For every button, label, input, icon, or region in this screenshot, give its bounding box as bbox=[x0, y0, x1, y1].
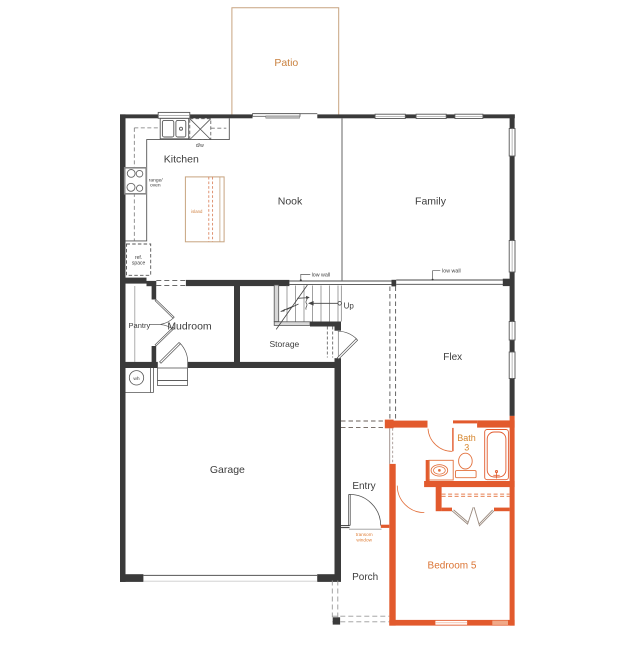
svg-text:Storage: Storage bbox=[270, 339, 300, 349]
svg-text:Patio: Patio bbox=[274, 57, 298, 69]
svg-text:Entry: Entry bbox=[352, 481, 375, 492]
svg-text:Nook: Nook bbox=[278, 196, 303, 208]
svg-text:Porch: Porch bbox=[352, 572, 378, 583]
svg-text:oven: oven bbox=[150, 184, 161, 189]
svg-text:range/: range/ bbox=[149, 177, 164, 183]
svg-text:wh: wh bbox=[133, 376, 140, 382]
svg-text:Up: Up bbox=[344, 302, 355, 311]
svg-text:space: space bbox=[132, 260, 146, 266]
svg-text:Mudroom: Mudroom bbox=[167, 321, 212, 333]
svg-text:low wall: low wall bbox=[312, 273, 331, 279]
svg-text:island: island bbox=[191, 209, 203, 214]
svg-text:3: 3 bbox=[464, 442, 469, 452]
svg-text:Bedroom 5: Bedroom 5 bbox=[428, 561, 477, 572]
svg-text:Kitchen: Kitchen bbox=[164, 154, 199, 166]
svg-text:Pantry: Pantry bbox=[129, 321, 151, 330]
svg-text:d/w: d/w bbox=[196, 143, 204, 149]
svg-text:Family: Family bbox=[415, 196, 447, 208]
svg-text:Garage: Garage bbox=[210, 464, 245, 476]
svg-text:Flex: Flex bbox=[443, 352, 462, 363]
svg-text:low wall: low wall bbox=[442, 269, 461, 275]
svg-text:window: window bbox=[356, 537, 372, 542]
